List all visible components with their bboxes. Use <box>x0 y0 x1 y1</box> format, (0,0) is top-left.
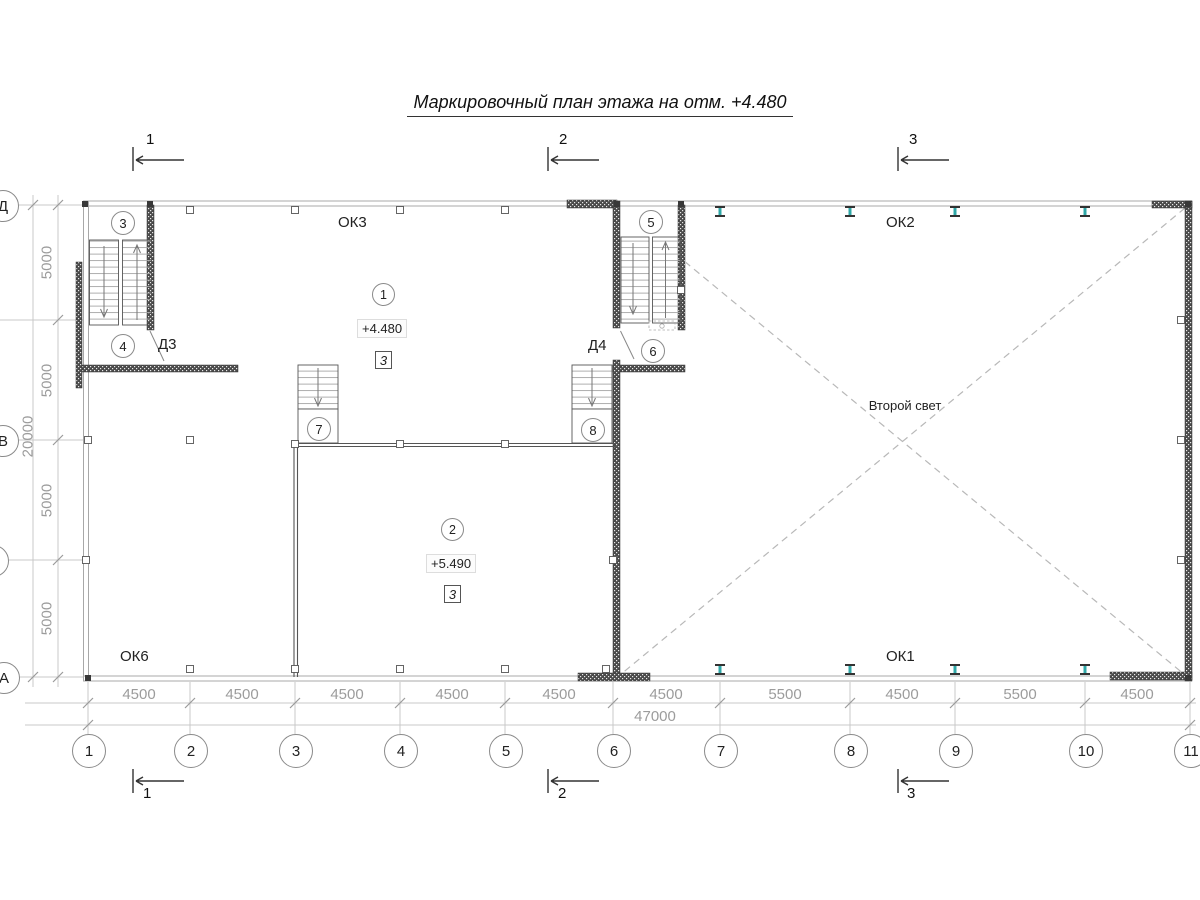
label-door-d4: Д4 <box>588 337 607 354</box>
room1-elevation: +4.480 <box>357 319 407 338</box>
dim-bottom-9: 5500 <box>990 686 1050 703</box>
plan-linework <box>0 0 1200 900</box>
axis-col-11: 11 <box>1174 734 1200 768</box>
label-ok2: ОК2 <box>886 214 915 231</box>
axis-col-2: 2 <box>174 734 208 768</box>
dim-left-4: 5000 <box>39 589 56 649</box>
grid-lines <box>0 195 1196 734</box>
dim-bottom-5: 4500 <box>529 686 589 703</box>
dim-bottom-10: 4500 <box>1107 686 1167 703</box>
label-second-light: Второй свет <box>855 398 955 413</box>
dim-bottom-1: 4500 <box>109 686 169 703</box>
mark-circle-3: 3 <box>111 211 135 235</box>
mark-circle-5: 5 <box>639 210 663 234</box>
section-label-2-top: 2 <box>559 131 567 148</box>
drawing-canvas: Маркировочный план этажа на отм. +4.480 … <box>0 0 1200 900</box>
label-ok1: ОК1 <box>886 648 915 665</box>
section-label-1-top: 1 <box>146 131 154 148</box>
dim-left-1: 5000 <box>39 233 56 293</box>
axis-col-3: 3 <box>279 734 313 768</box>
dim-bottom-3: 4500 <box>317 686 377 703</box>
dim-bottom-6: 4500 <box>636 686 696 703</box>
dim-bottom-2: 4500 <box>212 686 272 703</box>
axis-col-4: 4 <box>384 734 418 768</box>
dim-bottom-total: 47000 <box>625 708 685 725</box>
axis-col-6: 6 <box>597 734 631 768</box>
label-ok3: ОК3 <box>338 214 367 231</box>
mark-circle-7: 7 <box>307 417 331 441</box>
axis-col-7: 7 <box>704 734 738 768</box>
section-label-1-bottom: 1 <box>143 785 151 802</box>
section-label-2-bottom: 2 <box>558 785 566 802</box>
section-label-3-bottom: 3 <box>907 785 915 802</box>
room1-type-box: 3 <box>375 351 392 369</box>
axis-col-9: 9 <box>939 734 973 768</box>
plan-title: Маркировочный план этажа на отм. +4.480 <box>0 92 1200 117</box>
axis-col-5: 5 <box>489 734 523 768</box>
axis-col-10: 10 <box>1069 734 1103 768</box>
dim-left-2: 5000 <box>39 351 56 411</box>
dim-bottom-8: 4500 <box>872 686 932 703</box>
dim-bottom-7: 5500 <box>755 686 815 703</box>
mark-circle-8: 8 <box>581 418 605 442</box>
dim-left-3: 5000 <box>39 471 56 531</box>
room2-elevation: +5.490 <box>426 554 476 573</box>
dim-left-total: 20000 <box>20 407 37 467</box>
steel-beam-icon <box>715 206 1090 675</box>
label-door-d3: Д3 <box>158 336 177 353</box>
room2-number-circle: 2 <box>441 518 464 541</box>
mark-circle-4: 4 <box>111 334 135 358</box>
void-cross-dashed-lines <box>620 208 1185 675</box>
room1-number-circle: 1 <box>372 283 395 306</box>
mark-circle-6: 6 <box>641 339 665 363</box>
axis-col-8: 8 <box>834 734 868 768</box>
room2-type-box: 3 <box>444 585 461 603</box>
section-label-3-top: 3 <box>909 131 917 148</box>
dimension-ticks <box>28 200 1195 730</box>
label-ok6: ОК6 <box>120 648 149 665</box>
axis-col-1: 1 <box>72 734 106 768</box>
dim-bottom-4: 4500 <box>422 686 482 703</box>
